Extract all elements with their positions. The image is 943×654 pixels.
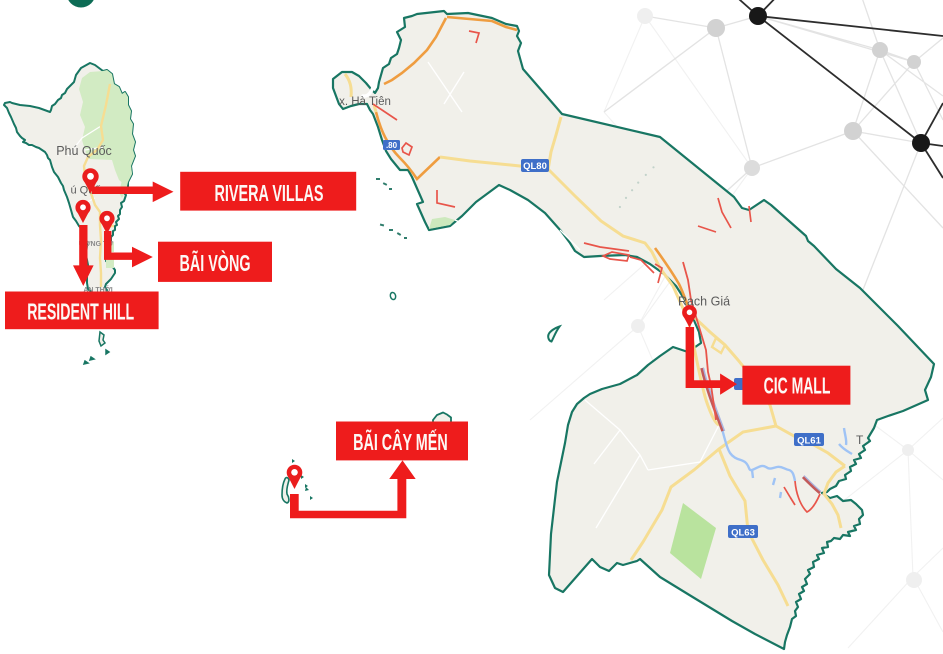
svg-text:BÃI VÒNG: BÃI VÒNG — [180, 249, 251, 276]
svg-text:QL80: QL80 — [523, 161, 547, 172]
svg-text:RESIDENT HILL: RESIDENT HILL — [27, 299, 134, 325]
svg-text:CIC MALL: CIC MALL — [764, 373, 831, 399]
svg-text:QL61: QL61 — [797, 436, 821, 447]
svg-text:QL63: QL63 — [731, 528, 755, 539]
svg-text:x. Hà Tiên: x. Hà Tiên — [339, 96, 391, 108]
svg-text:RIVERA VILLAS: RIVERA VILLAS — [215, 180, 324, 206]
svg-text:Phú Quốc: Phú Quốc — [56, 144, 112, 158]
svg-text:T: T — [856, 433, 864, 447]
svg-text:BÃI CÂY MẾN: BÃI CÂY MẾN — [353, 428, 448, 455]
svg-text:.80: .80 — [386, 141, 398, 150]
